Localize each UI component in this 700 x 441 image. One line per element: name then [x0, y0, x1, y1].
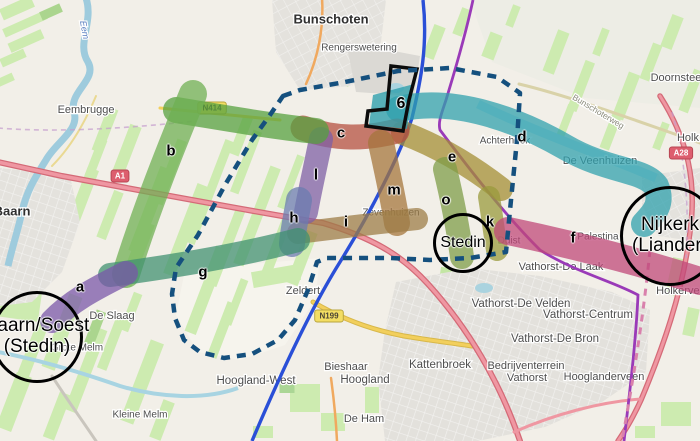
place-label: Eem	[78, 20, 91, 40]
corridor-k	[489, 197, 497, 250]
place-label: Kleine Melm	[112, 410, 167, 421]
road-badge: N199	[315, 310, 344, 322]
place-label: De Ham	[344, 413, 384, 425]
place-label: Bedrijventerrein	[487, 360, 564, 372]
road-badge: A1	[111, 170, 129, 182]
place-label: Rengerswetering	[321, 43, 397, 54]
place-label: De Slaag	[89, 310, 134, 322]
place-label: Vathorst	[507, 372, 547, 384]
svg-text:A1: A1	[115, 172, 126, 181]
place-label: Baarn	[0, 203, 30, 218]
place-label: Hoogland	[340, 374, 389, 386]
place-label: Hoogland-West	[216, 375, 296, 387]
road-badge: A28	[669, 147, 692, 159]
svg-text:N199: N199	[319, 312, 339, 321]
corridor-o	[445, 169, 462, 257]
place-label: Doornsteeg	[651, 72, 700, 84]
place-label: Bieshaar	[324, 361, 368, 373]
place-label: Holk	[677, 132, 700, 144]
place-label: Zeldert	[286, 285, 320, 297]
place-label: Vathorst-De Bron	[511, 333, 599, 345]
place-label: Kattenbroek	[409, 359, 471, 371]
map-canvas: BunschotenRengersweteringDoornsteegEembr…	[0, 0, 700, 441]
place-label: Vathorst-Centrum	[543, 309, 633, 321]
svg-text:A28: A28	[674, 149, 689, 158]
basemap-layer: BunschotenRengersweteringDoornsteegEembr…	[0, 0, 700, 441]
place-label: Eembrugge	[58, 104, 115, 116]
corridor-i	[298, 219, 417, 233]
place-label: Bunschoten	[293, 11, 368, 26]
place-label: Grote Melm	[51, 343, 103, 354]
polder-pale-area	[470, 0, 700, 108]
